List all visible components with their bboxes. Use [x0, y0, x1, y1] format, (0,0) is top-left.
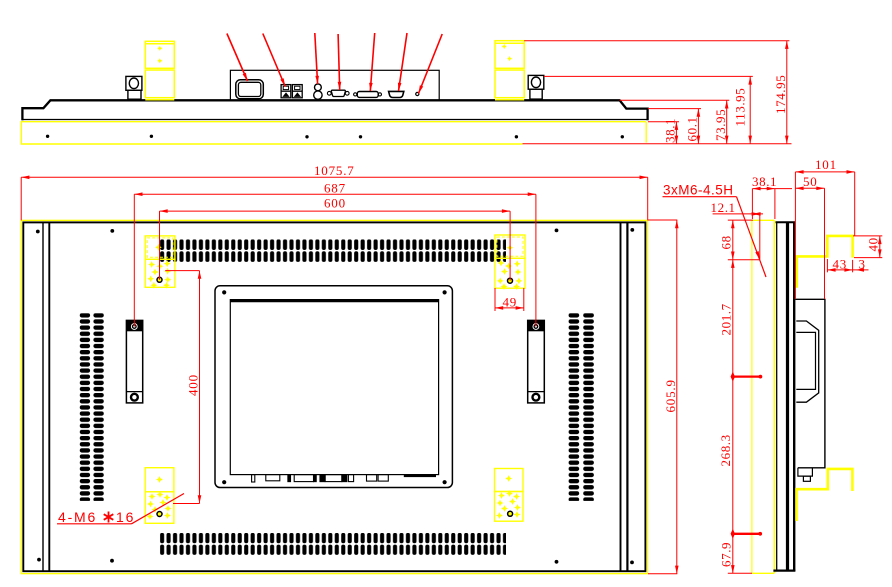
svg-text:38.1: 38.1: [752, 174, 777, 189]
svg-text:3: 3: [859, 256, 866, 271]
svg-text:174.95: 174.95: [773, 75, 788, 114]
svg-text:50: 50: [803, 174, 818, 189]
svg-text:600: 600: [324, 196, 346, 211]
svg-text:73.95: 73.95: [713, 109, 728, 141]
svg-text:4-M6: 4-M6: [58, 509, 97, 525]
svg-text:38.1: 38.1: [663, 118, 678, 143]
svg-text:268.3: 268.3: [718, 434, 733, 466]
svg-text:68: 68: [719, 235, 734, 249]
svg-text:201.7: 201.7: [719, 303, 734, 335]
svg-text:43: 43: [833, 256, 848, 271]
svg-text:16: 16: [116, 509, 135, 525]
svg-text:605.9: 605.9: [663, 379, 678, 412]
svg-text:12.1: 12.1: [711, 200, 736, 215]
svg-text:400: 400: [186, 374, 201, 396]
svg-text:60.1: 60.1: [685, 116, 700, 141]
svg-text:687: 687: [324, 181, 346, 196]
svg-text:67.9: 67.9: [719, 542, 734, 567]
svg-text:3xM6-4.5H: 3xM6-4.5H: [663, 183, 734, 198]
svg-text:49: 49: [503, 295, 518, 310]
svg-text:1075.7: 1075.7: [314, 163, 355, 178]
svg-text:101: 101: [815, 157, 837, 172]
svg-text:113.95: 113.95: [733, 88, 748, 127]
svg-text:40: 40: [866, 237, 881, 251]
